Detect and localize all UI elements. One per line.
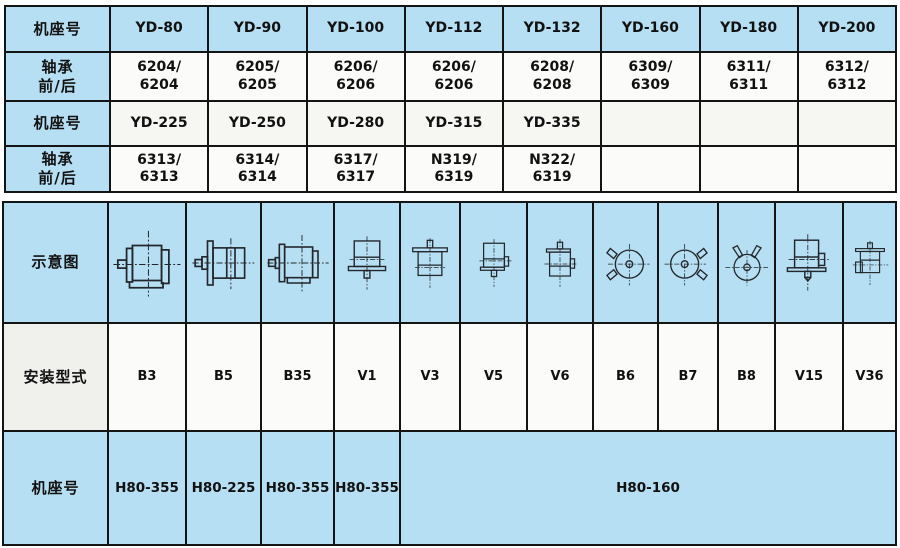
frame-cell: YD-160 bbox=[602, 7, 698, 51]
bearing-cell: 6208/ 6208 bbox=[504, 53, 600, 100]
frame-cell: YD-132 bbox=[504, 7, 600, 51]
frame-cell: YD-112 bbox=[406, 7, 502, 51]
empty-cell bbox=[701, 147, 797, 191]
motor-v5-foot-shaft-down-icon bbox=[468, 215, 520, 311]
diagram-cell-b6 bbox=[594, 203, 657, 322]
diagram-cell-v3 bbox=[401, 203, 459, 322]
diagram-cell-v36 bbox=[844, 203, 895, 322]
diagram-cell-b7 bbox=[659, 203, 717, 322]
mount-type-cell: V36 bbox=[844, 324, 895, 430]
mount-type-cell: V15 bbox=[776, 324, 842, 430]
bearing-cell: 6206/ 6206 bbox=[406, 53, 502, 100]
motor-b5-flange-horizontal-icon bbox=[191, 215, 257, 311]
bearing-cell: N322/ 6319 bbox=[504, 147, 600, 191]
motor-b8-endview-feet-top-icon bbox=[720, 215, 774, 311]
bearing-cell: 6312/ 6312 bbox=[799, 53, 895, 100]
bearing-cell: 6309/ 6309 bbox=[602, 53, 698, 100]
motor-v6-foot-shaft-up-icon bbox=[534, 215, 586, 311]
motor-v3-flange-shaft-up-icon bbox=[403, 215, 457, 311]
frame-range-merged-cell: H80-160 bbox=[401, 432, 895, 544]
frame-cell: YD-225 bbox=[111, 102, 207, 145]
motor-b6-endview-feet-left-icon bbox=[598, 215, 654, 311]
frame-row2-label: 机座号 bbox=[6, 102, 109, 145]
frame-cell: YD-335 bbox=[504, 102, 600, 145]
frame-cell: YD-100 bbox=[308, 7, 404, 51]
motor-v15-foot-flange-shaft-down-icon bbox=[779, 215, 839, 311]
frame-row1-label: 机座号 bbox=[6, 7, 109, 51]
bearing-cell: 6317/ 6317 bbox=[308, 147, 404, 191]
bearing-cell: 6204/ 6204 bbox=[111, 53, 207, 100]
mounting-table: 示意图 bbox=[2, 201, 897, 546]
motor-b35-foot-flange-icon bbox=[266, 215, 330, 311]
bearing-row2-label: 轴承 前/后 bbox=[6, 147, 109, 191]
diagram-cell-b8 bbox=[719, 203, 774, 322]
mount-type-cell: B35 bbox=[262, 324, 333, 430]
bearing-table: 机座号 YD-80 YD-90 YD-100 YD-112 YD-132 YD-… bbox=[4, 5, 897, 193]
bearing-cell: 6313/ 6313 bbox=[111, 147, 207, 191]
motor-v36-foot-flange-shaft-up-icon bbox=[846, 215, 894, 311]
frame-cell: YD-280 bbox=[308, 102, 404, 145]
frame-range-cell: H80-225 bbox=[187, 432, 260, 544]
mount-type-cell: B5 bbox=[187, 324, 260, 430]
diagram-cell-b5 bbox=[187, 203, 260, 322]
mount-type-cell: V3 bbox=[401, 324, 459, 430]
mount-type-cell: V1 bbox=[335, 324, 399, 430]
frame-cell: YD-180 bbox=[701, 7, 797, 51]
empty-cell bbox=[602, 147, 698, 191]
empty-cell bbox=[799, 102, 895, 145]
frame-cell: YD-250 bbox=[209, 102, 305, 145]
empty-cell bbox=[799, 147, 895, 191]
bearing-cell: N319/ 6319 bbox=[406, 147, 502, 191]
mount-row-label: 安装型式 bbox=[4, 324, 107, 430]
bearing-cell: 6206/ 6206 bbox=[308, 53, 404, 100]
diagram-cell-b3 bbox=[109, 203, 185, 322]
mount-type-cell: B6 bbox=[594, 324, 657, 430]
motor-b7-endview-feet-right-icon bbox=[660, 215, 716, 311]
frame-cell: YD-80 bbox=[111, 7, 207, 51]
frame-range-cell: H80-355 bbox=[262, 432, 333, 544]
bearing-cell: 6311/ 6311 bbox=[701, 53, 797, 100]
diagram-cell-v6 bbox=[528, 203, 592, 322]
mount-type-cell: B3 bbox=[109, 324, 185, 430]
frame-row-label: 机座号 bbox=[4, 432, 107, 544]
empty-cell bbox=[701, 102, 797, 145]
mount-type-cell: V5 bbox=[461, 324, 526, 430]
bearing-cell: 6314/ 6314 bbox=[209, 147, 305, 191]
frame-cell: YD-315 bbox=[406, 102, 502, 145]
motor-v1-flange-shaft-down-icon bbox=[338, 215, 396, 311]
frame-range-cell: H80-355 bbox=[335, 432, 399, 544]
frame-range-cell: H80-355 bbox=[109, 432, 185, 544]
mount-type-cell: V6 bbox=[528, 324, 592, 430]
bearing-cell: 6205/ 6205 bbox=[209, 53, 305, 100]
diagram-cell-v1 bbox=[335, 203, 399, 322]
diagram-row-label: 示意图 bbox=[4, 203, 107, 322]
mount-type-cell: B8 bbox=[719, 324, 774, 430]
frame-cell: YD-200 bbox=[799, 7, 895, 51]
diagram-cell-v15 bbox=[776, 203, 842, 322]
motor-b3-foot-horizontal-icon bbox=[112, 215, 182, 311]
diagram-cell-b35 bbox=[262, 203, 333, 322]
diagram-cell-v5 bbox=[461, 203, 526, 322]
empty-cell bbox=[602, 102, 698, 145]
bearing-row1-label: 轴承 前/后 bbox=[6, 53, 109, 100]
catalog-spec-sheet: 机座号 YD-80 YD-90 YD-100 YD-112 YD-132 YD-… bbox=[0, 0, 900, 546]
mount-type-cell: B7 bbox=[659, 324, 717, 430]
frame-cell: YD-90 bbox=[209, 7, 305, 51]
